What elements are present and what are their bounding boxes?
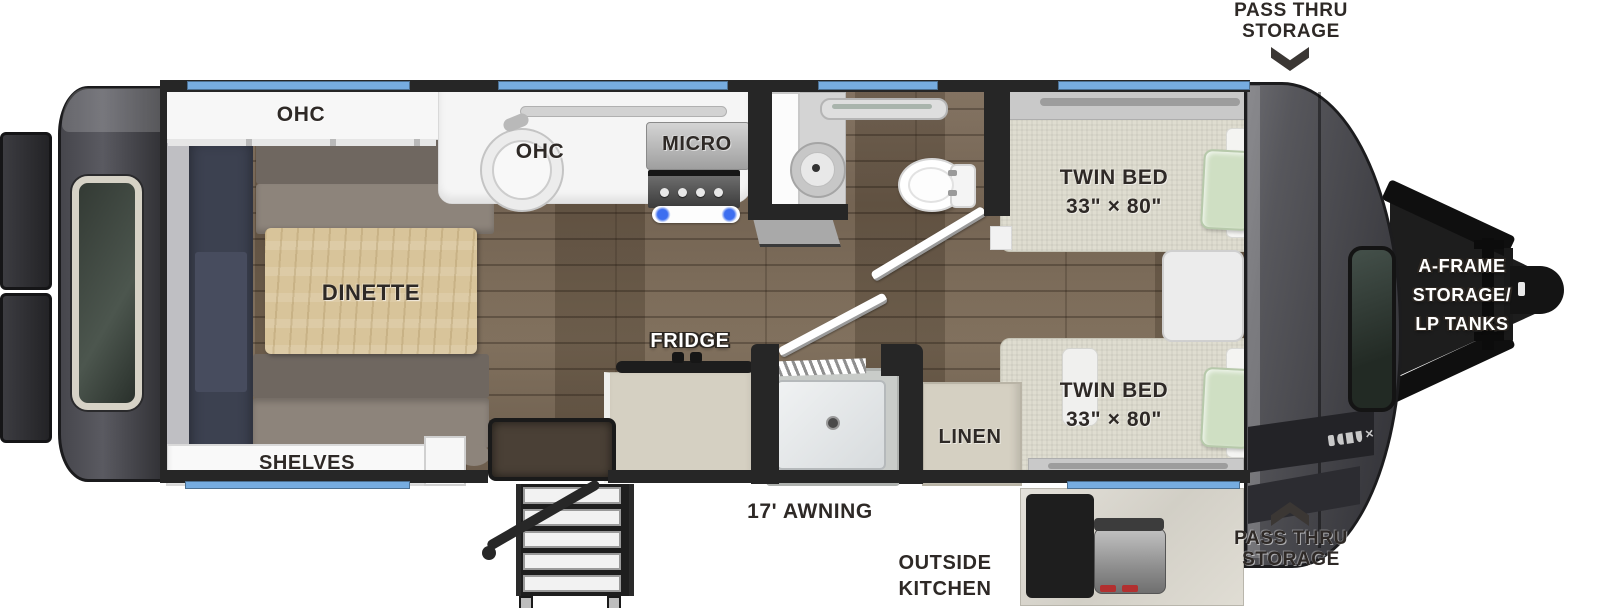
rear-wardrobe-door (195, 252, 247, 392)
twin-bed-bottom-label: TWIN BED 33" × 80" (1028, 376, 1200, 434)
window-top-1 (187, 81, 410, 90)
bathroom-corner-cabinet (990, 226, 1012, 250)
aframe-line2: STORAGE/ (1382, 281, 1542, 310)
aframe-storage-label: A-FRAME STORAGE/ LP TANKS (1382, 252, 1542, 339)
linen-label: LINEN (922, 426, 1018, 449)
shelves-label: SHELVES (166, 452, 448, 475)
floorplan: OHC DINETTE OHC MICRO (0, 0, 1600, 608)
refrigerator (604, 372, 756, 483)
window-bottom-2 (1067, 481, 1240, 489)
outside-kitchen-line1: OUTSIDE (865, 550, 1025, 576)
pass-thru-bottom-line1: PASS THRU (1211, 528, 1371, 549)
dinette-label: DINETTE (265, 280, 477, 306)
toilet-hinge (948, 170, 957, 176)
step-tread (523, 575, 621, 592)
aframe-line1: A-FRAME (1382, 252, 1542, 281)
step-foot (607, 596, 621, 608)
bathroom-vent-slot (832, 104, 932, 109)
exterior-wall-rear (160, 80, 167, 483)
rear-cap-roofline (62, 88, 160, 132)
grill-knob (1122, 585, 1138, 592)
rear-cabinet-panel (167, 140, 189, 462)
awning-label: 17' AWNING (720, 500, 900, 524)
stove-knob (660, 188, 669, 197)
pass-thru-top-line2: STORAGE (1211, 21, 1371, 42)
cabinet-door-seams (168, 139, 436, 146)
stove-knob (696, 188, 705, 197)
pass-thru-bottom-label: PASS THRU STORAGE (1211, 528, 1371, 570)
fridge-handle (672, 352, 684, 363)
rear-bumper-upper (0, 132, 52, 290)
micro-label: MICRO (646, 133, 748, 156)
bathroom-skylight-vent (820, 98, 948, 120)
entry-door-opening (488, 418, 616, 481)
step-handrail-cap (482, 546, 496, 560)
window-top-4 (1058, 81, 1250, 90)
rear-bumper-lower (0, 293, 52, 443)
bathroom-wall-bottom (748, 204, 848, 220)
fridge-label: FRIDGE (610, 330, 770, 353)
twin-bed-top-line2: 33" × 80" (1028, 192, 1200, 221)
pass-thru-top-line1: PASS THRU (1211, 0, 1371, 21)
window-top-3 (818, 81, 938, 90)
ohc-rear-label: OHC (162, 103, 440, 127)
kitchen-corner-cabinet (753, 218, 841, 247)
chevron-down-icon (1271, 47, 1309, 71)
shower-drain (826, 416, 840, 430)
twin-bed-top-line1: TWIN BED (1028, 163, 1200, 192)
step-tread (523, 553, 621, 570)
bathroom-wall-left (748, 88, 772, 212)
outside-grill-lid (1094, 518, 1164, 531)
outside-kitchen-griddle (1026, 494, 1094, 598)
bathroom-wall-right (984, 88, 1010, 216)
stove-cooktop (648, 170, 740, 208)
jack-crossbar (1474, 240, 1504, 249)
aframe-line3: LP TANKS (1382, 310, 1542, 339)
fridge-handle (690, 352, 702, 363)
dinette-bench-back-bottom (253, 354, 489, 398)
awning-rail-slot (1048, 463, 1228, 469)
shower-wall-left (751, 344, 779, 484)
window-top-2 (498, 81, 728, 90)
toilet-hinge (948, 190, 957, 196)
twin-bed-top-label: TWIN BED 33" × 80" (1028, 163, 1200, 221)
counter-handle-slot (520, 106, 727, 117)
outside-kitchen-label: OUTSIDE KITCHEN (865, 550, 1025, 602)
pass-thru-top-label: PASS THRU STORAGE (1211, 0, 1371, 42)
stove-knob (678, 188, 687, 197)
fridge-top-counter (616, 361, 754, 373)
twin-bed-bottom-line2: 33" × 80" (1028, 405, 1200, 434)
pass-thru-bottom-line2: STORAGE (1211, 549, 1371, 570)
window-bottom-1 (185, 481, 410, 489)
oven-front (652, 206, 740, 223)
bathroom-sink-drain (812, 164, 820, 172)
window-slot-top (1040, 98, 1240, 106)
step-tread (523, 531, 621, 548)
twin-bed-bottom-line1: TWIN BED (1028, 376, 1200, 405)
stove-knob (714, 188, 723, 197)
shower-wall-right (899, 352, 923, 484)
step-foot (519, 596, 533, 608)
nightstand (1162, 250, 1244, 342)
ohc-kitchen-label: OHC (480, 140, 600, 164)
rear-window (72, 176, 142, 410)
grill-knob (1100, 585, 1116, 592)
outside-kitchen-line2: KITCHEN (865, 576, 1025, 602)
